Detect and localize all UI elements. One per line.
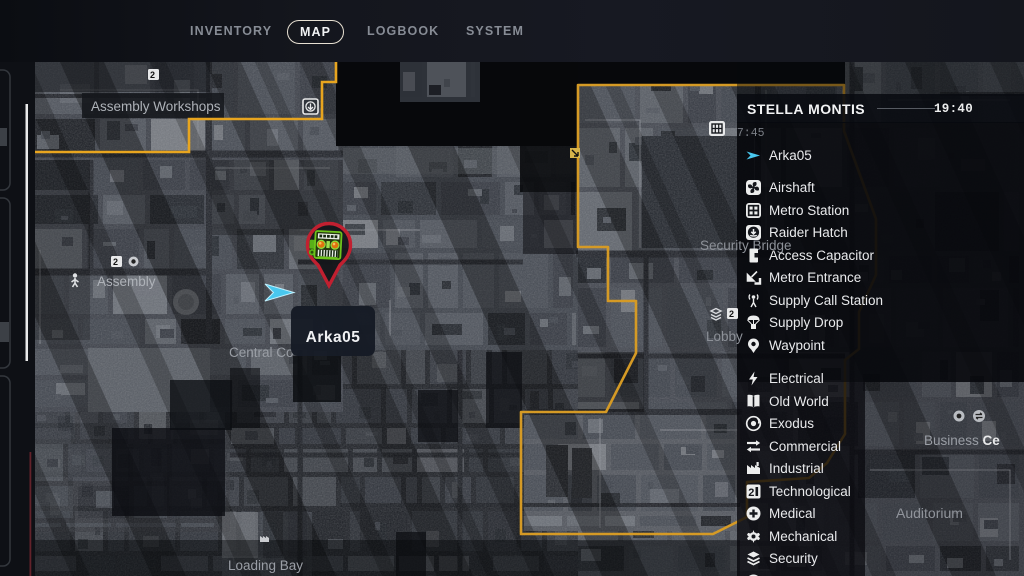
svg-text:2: 2 <box>729 309 734 319</box>
svg-text:Assembly Workshops: Assembly Workshops <box>91 99 221 114</box>
svg-text:Loading Bay: Loading Bay <box>228 558 303 573</box>
svg-text:Arka05: Arka05 <box>306 329 361 346</box>
svg-text:2: 2 <box>748 486 754 498</box>
svg-text:Central Co: Central Co <box>229 345 294 360</box>
svg-text:2: 2 <box>150 70 155 80</box>
svg-text:2: 2 <box>113 257 118 267</box>
svg-text:Assembly: Assembly <box>97 274 156 289</box>
